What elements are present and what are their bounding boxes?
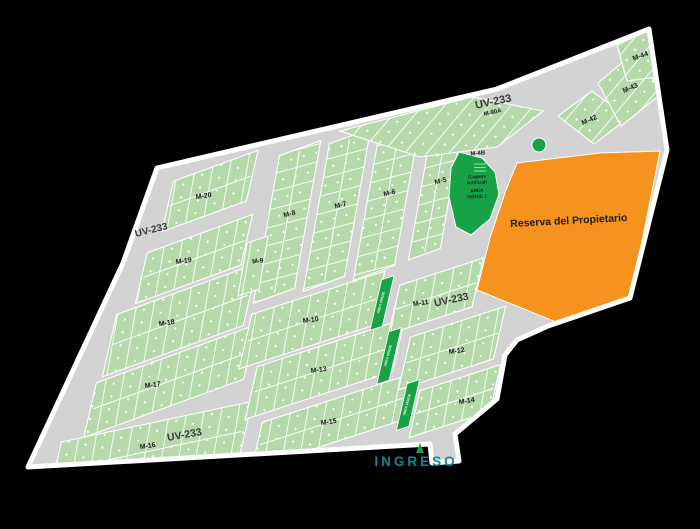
laguna-artificial-label-line2: Artificial) [467,179,488,185]
area-verde-1-label-line1: AREA [470,188,484,194]
area-verde-1-label-line2: VERDE 1 [467,193,487,199]
subdivision-map: M-20M-19M-18M-17M-16M-10M-13M-15M-11M-12… [0,0,700,529]
laguna-artificial-label-line1: (Laguna [468,174,487,180]
subdivision-map-canvas: M-20M-19M-18M-17M-16M-10M-13M-15M-11M-12… [0,0,700,529]
ingreso-label: INGRESO [374,454,457,469]
roundabout-green-circle [532,138,546,152]
